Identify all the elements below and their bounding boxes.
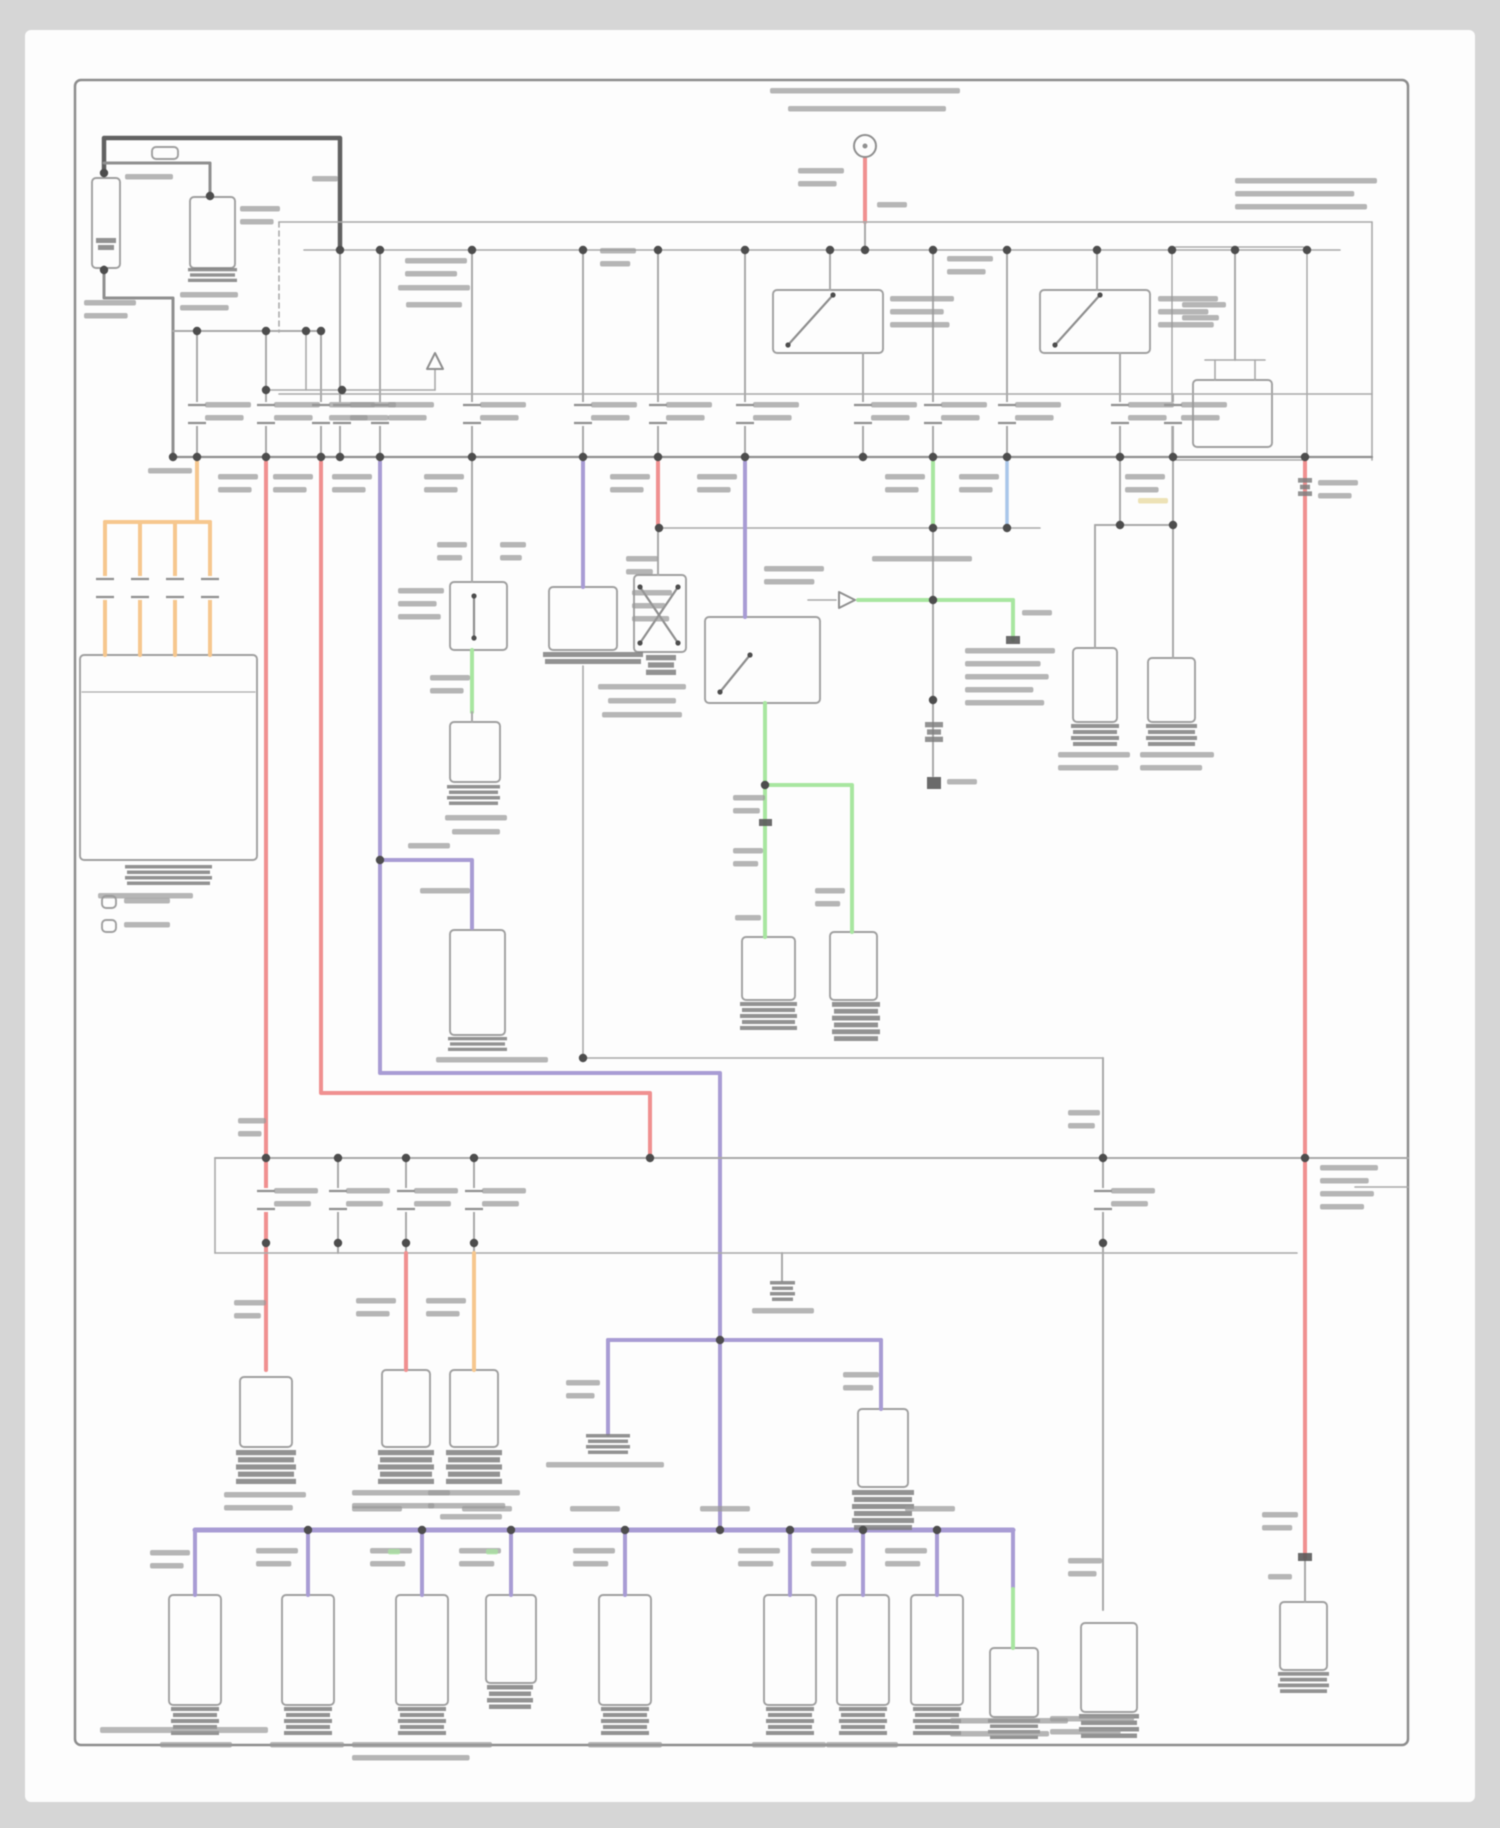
label-line — [452, 829, 500, 835]
label-line — [180, 305, 229, 311]
label-line — [270, 1742, 344, 1748]
hatch-bar — [1280, 1689, 1327, 1693]
component-box-1 — [190, 197, 235, 268]
label-line — [591, 415, 630, 421]
label-line — [752, 1308, 814, 1314]
junction-dot-33 — [859, 453, 867, 461]
hatch-bar — [915, 1725, 959, 1729]
label-line — [546, 1462, 664, 1468]
hatch-bar — [448, 1048, 507, 1051]
label-line — [125, 174, 173, 180]
label-line — [843, 1372, 879, 1378]
label-line — [598, 684, 686, 690]
label-line — [1158, 296, 1218, 302]
connector-hatch-14 — [446, 1450, 502, 1484]
hatch-bar — [742, 1008, 795, 1012]
label-line — [905, 1506, 955, 1512]
label-line — [273, 474, 313, 480]
label-text-blob-90 — [462, 1506, 512, 1512]
hatch-bar — [1148, 730, 1195, 734]
hatch-bar — [1278, 1684, 1329, 1688]
label-line — [273, 487, 307, 493]
label-line — [632, 616, 669, 622]
switch-contact-dot — [675, 584, 680, 589]
label-line — [1181, 402, 1227, 408]
label-line — [1111, 1201, 1148, 1207]
junction-dot-34 — [929, 453, 937, 461]
hatch-bar — [236, 1479, 296, 1484]
junction-dot-14 — [741, 246, 749, 254]
junction-dot-41 — [1003, 524, 1011, 532]
hatch-bar — [238, 1472, 294, 1477]
label-line — [941, 415, 980, 421]
label-line — [398, 601, 437, 607]
label-line — [1140, 765, 1202, 771]
label-line — [959, 474, 999, 480]
label-text-blob-89 — [352, 1506, 402, 1512]
junction-dot-12 — [579, 246, 587, 254]
hatch-bar — [98, 245, 114, 250]
sheet-caption-blob — [100, 1727, 268, 1733]
label-line — [570, 1506, 620, 1512]
connector-tick-3 — [1298, 1553, 1312, 1561]
hatch-bar — [398, 1707, 446, 1711]
label-line — [890, 309, 944, 315]
switch-contact-dot — [747, 652, 752, 657]
label-text-blob-113 — [1268, 1574, 1292, 1580]
junction-dot-36 — [1116, 453, 1124, 461]
component-box-27 — [764, 1595, 816, 1705]
hatch-bar — [927, 729, 941, 734]
label-line — [1235, 204, 1367, 210]
junction-dot-19 — [1093, 246, 1101, 254]
hatch-bar — [586, 1434, 630, 1438]
label-line — [764, 566, 824, 572]
label-line — [332, 474, 372, 480]
label-line — [224, 1505, 293, 1511]
label-line — [959, 487, 993, 493]
junction-dot-44 — [761, 781, 769, 789]
junction-dot-3 — [336, 246, 344, 254]
label-text-blob-64 — [1022, 610, 1052, 616]
label-line — [148, 468, 192, 474]
hatch-bar — [1071, 724, 1119, 728]
label-line — [965, 687, 1033, 693]
junction-dot-1 — [100, 266, 108, 274]
hatch-bar — [398, 1719, 446, 1723]
label-line — [405, 271, 457, 277]
label-text-blob-115 — [124, 922, 170, 928]
label-text-blob-46 — [602, 712, 682, 718]
component-box-29 — [911, 1595, 963, 1705]
hatch-bar — [380, 1457, 432, 1462]
hatch-bar — [487, 1698, 533, 1703]
junction-dot-18 — [1003, 246, 1011, 254]
label-line — [84, 300, 136, 306]
connector-hatch-0 — [188, 268, 237, 282]
label-text-blob-6 — [312, 176, 338, 182]
hatch-bar — [646, 670, 676, 675]
junction-dot-58 — [402, 1239, 410, 1247]
label-line — [798, 168, 844, 174]
connector-hatch-29 — [1298, 478, 1312, 496]
label-line — [352, 1755, 470, 1761]
component-box-30 — [990, 1648, 1038, 1717]
hatch-bar — [742, 1020, 795, 1024]
hatch-bar — [487, 1685, 533, 1690]
component-box-32 — [1280, 1602, 1327, 1670]
junction-dot-8 — [262, 386, 270, 394]
label-line — [408, 843, 450, 849]
label-line — [1111, 1188, 1155, 1194]
label-text-blob-114 — [124, 898, 170, 904]
switch-contact-dot — [830, 292, 835, 297]
hatch-bar — [601, 1719, 649, 1723]
label-line — [256, 1548, 298, 1554]
label-line — [947, 269, 986, 275]
label-line — [1140, 752, 1214, 758]
hatch-bar — [236, 1464, 296, 1469]
hatch-bar — [450, 1042, 505, 1045]
hatch-bar — [740, 1026, 797, 1030]
component-box-13 — [742, 937, 795, 1000]
label-line — [98, 893, 193, 899]
label-line — [941, 402, 987, 408]
junction-dot-65 — [507, 1526, 515, 1534]
junction-dot-52 — [470, 1154, 478, 1162]
hatch-bar — [286, 1713, 330, 1717]
label-text-blob-53 — [452, 829, 500, 835]
hatch-bar — [766, 1707, 814, 1711]
label-line — [445, 815, 507, 821]
hatch-bar — [1278, 1672, 1329, 1676]
junction-dot-60 — [1099, 1239, 1107, 1247]
hatch-bar — [646, 655, 676, 660]
label-line — [752, 1742, 826, 1748]
hatch-bar — [839, 1731, 887, 1735]
label-line — [1181, 415, 1220, 421]
hatch-bar — [127, 871, 210, 875]
hatch-bar — [171, 1707, 219, 1711]
label-line — [626, 569, 653, 575]
label-line — [885, 474, 925, 480]
junction-dot-53 — [646, 1154, 654, 1162]
label-line — [1318, 493, 1352, 499]
hatch-bar — [449, 802, 498, 806]
junction-dot-9 — [338, 386, 346, 394]
connector-tick-0 — [759, 819, 772, 826]
label-line — [753, 402, 799, 408]
connector-hatch-7 — [925, 722, 943, 742]
hatch-bar — [173, 1713, 217, 1717]
hatch-bar — [284, 1719, 332, 1723]
hatch-bar — [400, 1725, 444, 1729]
hatch-bar — [489, 1705, 531, 1710]
junction-dot-54 — [1099, 1154, 1107, 1162]
junction-dot-67 — [786, 1526, 794, 1534]
junction-dot-69 — [933, 1526, 941, 1534]
hatch-bar — [588, 1451, 628, 1455]
label-line — [1320, 1204, 1364, 1210]
label-line — [610, 474, 650, 480]
label-text-blob-67 — [1138, 498, 1168, 504]
label-text-blob-11 — [406, 302, 462, 308]
label-line — [871, 402, 917, 408]
switch-contact-dot — [471, 635, 476, 640]
label-line — [459, 1561, 494, 1567]
label-line — [430, 688, 464, 694]
component-box-17 — [80, 655, 257, 860]
hatch-bar — [839, 1719, 887, 1723]
label-line — [770, 88, 960, 94]
label-line — [1182, 302, 1226, 308]
hatch-bar — [915, 1713, 959, 1717]
hatch-bar — [834, 1023, 878, 1028]
label-line — [602, 712, 682, 718]
label-line — [332, 487, 366, 493]
hatch-bar — [286, 1725, 330, 1729]
label-line — [588, 1742, 662, 1748]
label-line — [420, 888, 470, 894]
label-line — [877, 202, 907, 208]
label-line — [738, 1561, 773, 1567]
hatch-bar — [125, 865, 212, 869]
label-line — [224, 1492, 306, 1498]
hatch-bar — [834, 1009, 878, 1014]
label-line — [666, 402, 712, 408]
hatch-bar — [1073, 742, 1117, 746]
label-line — [440, 1514, 502, 1520]
label-line — [573, 1561, 608, 1567]
label-line — [218, 487, 252, 493]
label-text-blob-109 — [826, 1742, 898, 1748]
hatch-bar — [601, 1707, 649, 1711]
hatch-bar — [586, 1445, 630, 1449]
junction-dot-23 — [169, 453, 177, 461]
label-line — [965, 648, 1055, 654]
hatch-bar — [852, 1518, 914, 1523]
label-line — [872, 556, 972, 562]
label-line — [573, 1548, 615, 1554]
hatch-bar — [832, 1029, 880, 1034]
label-line — [436, 1057, 548, 1063]
label-line — [218, 474, 258, 480]
hatch-bar — [448, 1457, 500, 1462]
hatch-bar — [854, 1511, 912, 1516]
switch-contact-dot — [1052, 342, 1057, 347]
label-line — [600, 248, 636, 254]
label-text-blob-54 — [408, 843, 450, 849]
hatch-bar — [449, 791, 498, 795]
junction-dot-59 — [470, 1239, 478, 1247]
hatch-bar — [768, 1725, 812, 1729]
junction-dot-4 — [193, 327, 201, 335]
label-text-blob-1 — [788, 106, 946, 112]
hatch-bar — [236, 1450, 296, 1455]
hatch-bar — [96, 238, 116, 243]
label-text-blob-93 — [905, 1506, 955, 1512]
hatch-bar — [188, 279, 237, 282]
label-line — [205, 415, 244, 421]
junction-dot-46 — [1169, 521, 1177, 529]
hatch-bar — [990, 1725, 1038, 1729]
hatch-bar — [171, 1719, 219, 1723]
hatch-bar — [852, 1490, 914, 1495]
junction-dot-55 — [1301, 1154, 1309, 1162]
component-box-23 — [282, 1595, 334, 1705]
hatch-bar — [380, 1472, 432, 1477]
hatch-bar — [448, 1472, 500, 1477]
hatch-bar — [839, 1707, 887, 1711]
hatch-bar — [1300, 485, 1310, 490]
label-line — [815, 888, 845, 894]
label-line — [591, 402, 637, 408]
hatch-bar — [740, 1002, 797, 1006]
label-text-blob-92 — [700, 1506, 750, 1512]
label-line — [890, 322, 950, 328]
component-box-6 — [1193, 380, 1272, 447]
label-line — [871, 415, 910, 421]
label-line — [1320, 1191, 1374, 1197]
junction-dot-50 — [334, 1154, 342, 1162]
label-line — [150, 1563, 184, 1569]
label-line — [234, 1313, 261, 1319]
hatch-bar — [446, 1464, 502, 1469]
junction-dot-48 — [376, 856, 384, 864]
label-line — [885, 1561, 920, 1567]
connector-hatch-6 — [646, 655, 676, 675]
junction-dot-6 — [302, 327, 310, 335]
label-line — [124, 922, 170, 928]
component-box-0 — [92, 178, 120, 268]
connector-tick-2 — [1006, 636, 1020, 644]
hatch-bar — [378, 1450, 434, 1455]
label-line — [205, 402, 251, 408]
junction-dot-37 — [1169, 453, 1177, 461]
connector-hatch-12 — [236, 1450, 296, 1484]
hatch-bar — [125, 876, 212, 880]
junction-dot-51 — [402, 1154, 410, 1162]
hatch-bar — [1298, 491, 1312, 496]
junction-dot-57 — [334, 1239, 342, 1247]
power-distribution-wiring-diagram — [0, 0, 1500, 1828]
label-line — [1318, 480, 1358, 486]
label-line — [405, 258, 467, 264]
hatch-bar — [1073, 730, 1117, 734]
hatch-bar — [770, 1281, 795, 1285]
label-text-blob-116 — [98, 893, 193, 899]
hatch-bar — [854, 1497, 912, 1502]
hatch-bar — [841, 1713, 885, 1717]
junction-dot-21 — [1231, 246, 1239, 254]
label-line — [1235, 178, 1377, 184]
junction-dot-43 — [929, 696, 937, 704]
label-line — [406, 302, 462, 308]
junction-dot-47 — [579, 1054, 587, 1062]
label-line — [610, 487, 644, 493]
label-text-blob-102 — [388, 1549, 400, 1555]
label-text-blob-82 — [440, 1514, 502, 1520]
junction-dot-15 — [826, 246, 834, 254]
label-line — [697, 474, 737, 480]
label-line — [1138, 498, 1168, 504]
label-line — [826, 1742, 898, 1748]
junction-dot-39 — [655, 524, 663, 532]
hatch-bar — [543, 652, 643, 657]
label-line — [482, 1201, 519, 1207]
label-text-blob-83 — [546, 1462, 664, 1468]
label-line — [500, 542, 526, 548]
label-line — [764, 579, 814, 585]
hatch-bar — [545, 659, 641, 664]
hatch-bar — [768, 1713, 812, 1717]
label-line — [950, 1731, 1049, 1737]
label-line — [1015, 402, 1061, 408]
label-text-blob-107 — [588, 1742, 662, 1748]
label-line — [947, 256, 993, 262]
component-box-14 — [830, 932, 877, 1000]
junction-dot-7 — [317, 327, 325, 335]
label-line — [428, 1490, 520, 1496]
label-line — [1068, 1558, 1102, 1564]
junction-dot-64 — [418, 1526, 426, 1534]
label-line — [890, 296, 954, 302]
label-text-blob-61 — [735, 915, 761, 921]
component-box-19 — [382, 1370, 430, 1447]
hatch-bar — [400, 1713, 444, 1717]
label-line — [388, 402, 434, 408]
hatch-bar — [447, 796, 500, 800]
hatch-bar — [188, 268, 237, 271]
label-line — [274, 1201, 311, 1207]
component-box-21 — [858, 1409, 908, 1487]
hatch-bar — [913, 1707, 961, 1711]
label-text-blob-41 — [148, 468, 192, 474]
label-line — [1158, 309, 1208, 315]
label-text-blob-108 — [752, 1742, 826, 1748]
hatch-bar — [834, 1036, 878, 1041]
label-line — [480, 402, 526, 408]
junction-dot-11 — [468, 246, 476, 254]
label-line — [1262, 1512, 1298, 1518]
component-box-15 — [1073, 648, 1117, 722]
hatch-bar — [1146, 724, 1197, 728]
junction-dot-42 — [929, 596, 937, 604]
label-line — [240, 219, 274, 225]
component-box-8 — [549, 587, 617, 650]
label-line — [150, 1550, 190, 1556]
hatch-bar — [284, 1731, 332, 1735]
label-line — [1235, 191, 1354, 197]
label-line — [811, 1561, 846, 1567]
junction-dot-40 — [929, 524, 937, 532]
component-box-31 — [1081, 1623, 1137, 1712]
component-box-24 — [396, 1595, 448, 1705]
label-line — [370, 1561, 405, 1567]
junction-dot-45 — [1116, 521, 1124, 529]
label-text-blob-86 — [752, 1308, 814, 1314]
component-box-2 — [152, 147, 178, 159]
hatch-bar — [1148, 742, 1195, 746]
label-line — [352, 1742, 492, 1748]
label-line — [424, 474, 464, 480]
hatch-bar — [447, 785, 500, 789]
label-line — [240, 206, 280, 212]
junction-dot-62 — [716, 1526, 724, 1534]
label-line — [566, 1393, 595, 1399]
label-line — [356, 1311, 390, 1317]
label-line — [312, 176, 338, 182]
